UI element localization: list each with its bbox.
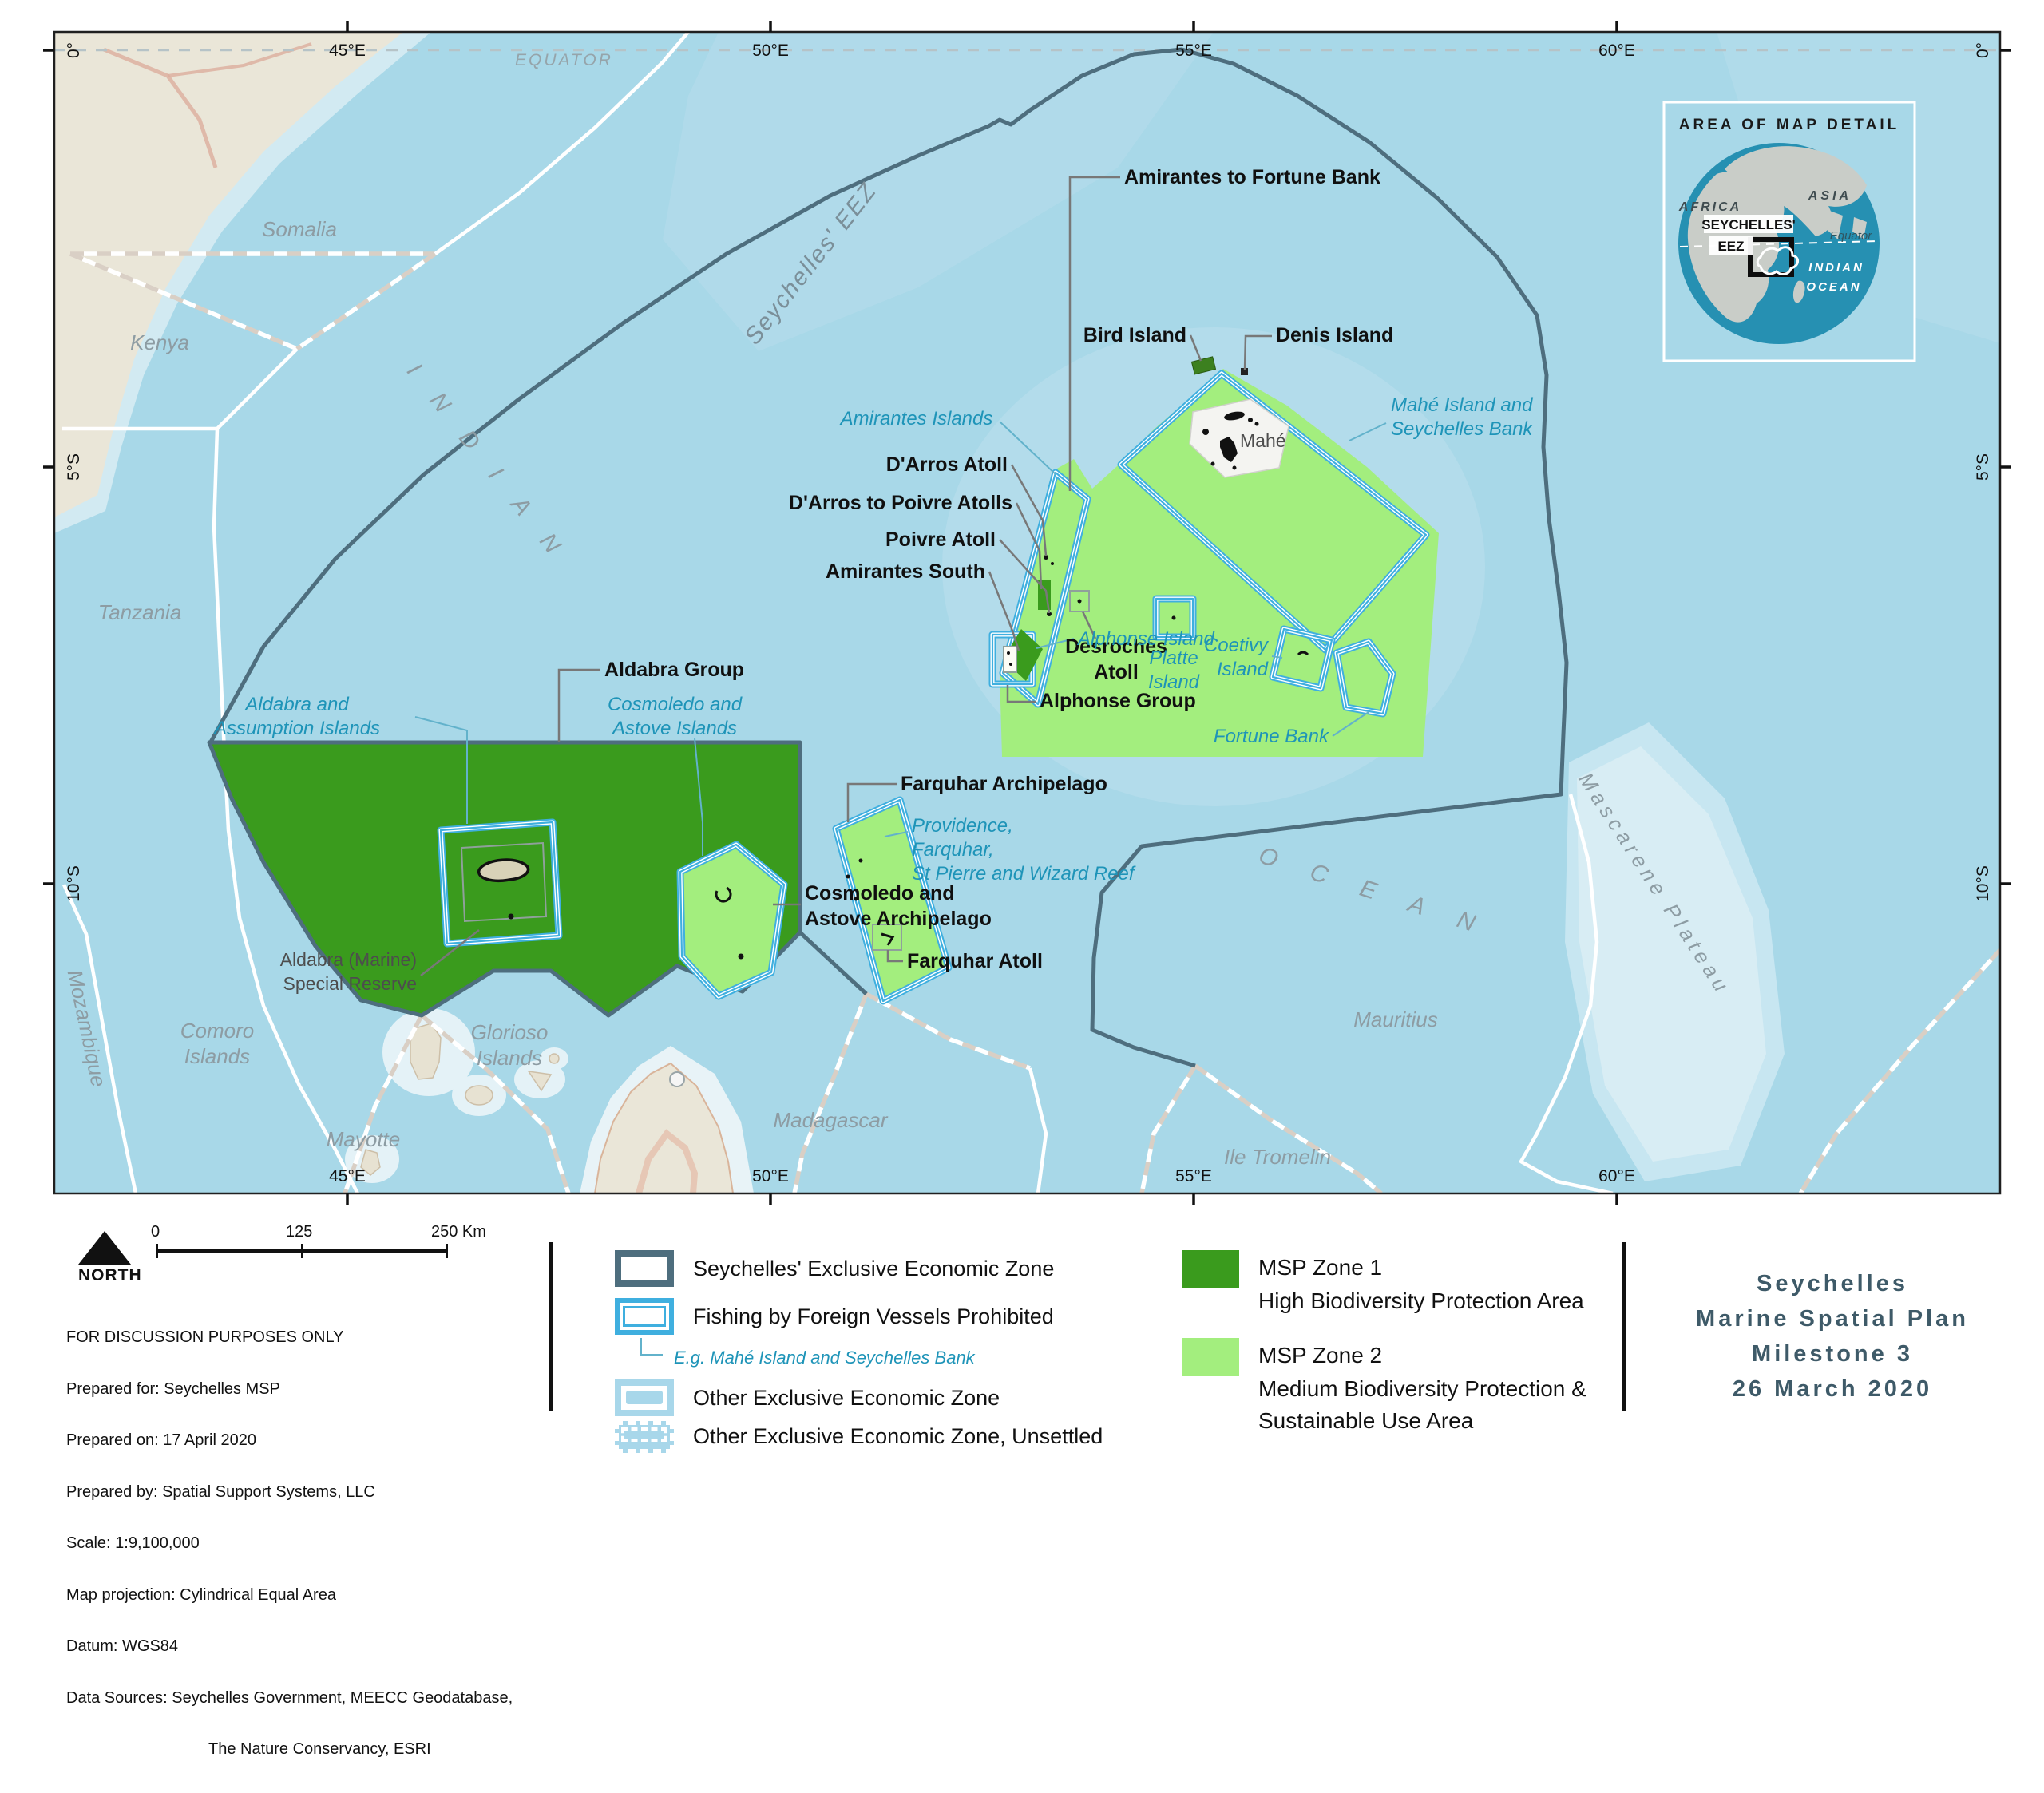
comoro-label-1: Comoro (180, 1019, 254, 1043)
lon-bottom-50: 50°E (752, 1167, 789, 1185)
lat-left-5s: 5°S (65, 453, 83, 481)
metadata-line: Prepared on: 17 April 2020 (66, 1432, 513, 1450)
legend-swatch-msp-zone2 (1182, 1338, 1239, 1376)
providence-label-2: Farquhar, (912, 839, 994, 861)
aldabra-assumption-label-2: Assumption Islands (212, 718, 380, 739)
inset-eez-label: EEZ (1717, 239, 1744, 254)
aldabra-group-label: Aldabra Group (604, 659, 744, 681)
legend-swatch-other-eez-unsettled (615, 1421, 674, 1453)
bird-island-label: Bird Island (1083, 324, 1186, 346)
metadata-line: Prepared by: Spatial Support Systems, LL… (66, 1484, 513, 1502)
lat-right-10s: 10°S (1974, 865, 1992, 902)
metadata-line: The Nature Conservancy, ESRI (66, 1741, 513, 1759)
legend-desc-msp-zone1: High Biodiversity Protection Area (1258, 1288, 1584, 1314)
metadata-line: Map projection: Cylindrical Equal Area (66, 1587, 513, 1605)
legend-label-other-eez: Other Exclusive Economic Zone (693, 1386, 1000, 1411)
cosmoledo-islands-label-1: Cosmoledo and (608, 694, 743, 715)
inset-indian-label: INDIAN (1808, 261, 1864, 275)
coetivy-island-label-2: Island (1217, 659, 1269, 680)
lon-bottom-55: 55°E (1175, 1167, 1212, 1185)
fortune-bank-label: Fortune Bank (1214, 726, 1330, 747)
legend-swatch-other-eez (615, 1379, 674, 1416)
equator-label: EQUATOR (515, 51, 613, 69)
footer-divider-1 (549, 1242, 553, 1411)
farquhar-archipelago-label: Farquhar Archipelago (901, 773, 1107, 795)
scale-bar-tick-250 (446, 1244, 448, 1258)
providence-label-3: St Pierre and Wizard Reef (912, 863, 1136, 885)
map-metadata-block: FOR DISCUSSION PURPOSES ONLY Prepared fo… (66, 1295, 513, 1793)
legend-label-msp-zone1: MSP Zone 1 (1258, 1255, 1382, 1280)
scale-label-250: 250 Km (431, 1223, 486, 1241)
glorioso-label-1: Glorioso (471, 1020, 549, 1044)
lat-left-10s: 10°S (65, 865, 83, 902)
title-line-4: 26 March 2020 (1642, 1371, 2023, 1407)
legend-desc-msp-zone2-line2: Sustainable Use Area (1258, 1408, 1473, 1434)
scale-bar-tick-125 (301, 1244, 303, 1258)
inset-area-of-map-detail: AREA OF MAP DETAIL SEYCHELLES' EEZ ASIA … (1664, 102, 1915, 361)
denis-island-label: Denis Island (1276, 324, 1393, 346)
ile-tromelin-label: Ile Tromelin (1224, 1145, 1331, 1169)
legend-elbow-connector (640, 1338, 663, 1356)
madagascar-label: Madagascar (773, 1108, 888, 1132)
aldabra-reserve-label-1: Aldabra (Marine) (280, 949, 417, 970)
poivre-atoll-label: Poivre Atoll (885, 528, 996, 551)
mahe-label: Mahé (1240, 430, 1286, 451)
legend-label-fishing-prohibited: Fishing by Foreign Vessels Prohibited (693, 1304, 1054, 1329)
cosmoledo-archipelago-label-1: Cosmoledo and (805, 882, 955, 904)
title-line-2: Marine Spatial Plan (1642, 1301, 2023, 1336)
metadata-line: Prepared for: Seychelles MSP (66, 1381, 513, 1399)
alphonse-island-label: Alphonse Island (1076, 628, 1214, 650)
lon-top-50: 50°E (752, 42, 789, 60)
inset-seychelles-label: SEYCHELLES' (1701, 217, 1795, 232)
lon-top-55: 55°E (1175, 42, 1212, 60)
legend-swatch-seychelles-eez (615, 1250, 674, 1287)
somalia-label: Somalia (262, 217, 337, 241)
tanzania-label: Tanzania (98, 600, 182, 624)
map-title-block: Seychelles Marine Spatial Plan Milestone… (1642, 1266, 2023, 1407)
amirantes-islands-label: Amirantes Islands (839, 408, 993, 429)
kenya-label: Kenya (130, 330, 189, 354)
amirantes-south-label: Amirantes South (826, 560, 985, 583)
legend-sublabel-fishing-example: E.g. Mahé Island and Seychelles Bank (674, 1348, 975, 1368)
scale-bar-tick-0 (156, 1244, 158, 1258)
inset-asia-label: ASIA (1808, 189, 1852, 203)
aldabra-assumption-label-1: Aldabra and (244, 694, 349, 715)
north-arrow-icon (78, 1231, 131, 1265)
inset-title: AREA OF MAP DETAIL (1679, 117, 1899, 133)
darros-to-poivre-label: D'Arros to Poivre Atolls (789, 492, 1012, 514)
providence-label-1: Providence, (912, 815, 1013, 837)
mahe-bank-label-2: Seychelles Bank (1391, 418, 1534, 440)
mahe-bank-label-1: Mahé Island and (1391, 394, 1533, 416)
legend-swatch-msp-zone1 (1182, 1250, 1239, 1288)
desroches-atoll-label-2: Atoll (1094, 661, 1139, 683)
footer-divider-2 (1622, 1242, 1626, 1411)
metadata-line: FOR DISCUSSION PURPOSES ONLY (66, 1329, 513, 1347)
legend-desc-msp-zone2-line1: Medium Biodiversity Protection & (1258, 1376, 1586, 1402)
lat-right-0: 0° (1974, 42, 1992, 58)
scale-label-0: 0 (151, 1223, 160, 1241)
legend-label-other-eez-unsettled: Other Exclusive Economic Zone, Unsettled (693, 1424, 1103, 1449)
aldabra-reserve-label-2: Special Reserve (283, 973, 417, 994)
cosmoledo-archipelago-label-2: Astove Archipelago (805, 908, 992, 930)
legend-label-seychelles-eez: Seychelles' Exclusive Economic Zone (693, 1257, 1054, 1281)
platte-island-label-2: Island (1148, 671, 1200, 693)
glorioso-label-2: Islands (477, 1046, 542, 1070)
lon-bottom-60: 60°E (1598, 1167, 1635, 1185)
farquhar-atoll-label: Farquhar Atoll (907, 950, 1043, 972)
platte-island-label-1: Platte (1149, 647, 1198, 669)
amirantes-to-fortune-bank-label: Amirantes to Fortune Bank (1124, 166, 1380, 188)
legend-swatch-fishing-prohibited (615, 1298, 674, 1335)
lat-right-5s: 5°S (1974, 453, 1992, 481)
lon-top-45: 45°E (329, 42, 366, 60)
inset-ocean-label: OCEAN (1806, 280, 1861, 294)
metadata-line: Datum: WGS84 (66, 1638, 513, 1656)
scale-label-125: 125 (286, 1223, 312, 1241)
legend-label-msp-zone2: MSP Zone 2 (1258, 1343, 1382, 1368)
lon-top-60: 60°E (1598, 42, 1635, 60)
cosmoledo-islands-label-2: Astove Islands (611, 718, 737, 739)
lon-bottom-45: 45°E (329, 1167, 366, 1185)
title-line-3: Milestone 3 (1642, 1336, 2023, 1371)
mauritius-label: Mauritius (1353, 1007, 1437, 1031)
comoro-label-2: Islands (184, 1044, 250, 1068)
coetivy-island-label-1: Coetivy (1204, 635, 1270, 656)
metadata-line: Data Sources: Seychelles Government, MEE… (66, 1690, 513, 1708)
metadata-line: Scale: 1:9,100,000 (66, 1535, 513, 1553)
map-sheet: EQUATOR Seychelles' EEZ Somalia Kenya Ta… (0, 0, 2044, 1445)
inset-africa-label: AFRICA (1678, 200, 1741, 214)
alphonse-group-label: Alphonse Group (1040, 690, 1196, 712)
mayotte-label: Mayotte (327, 1127, 401, 1151)
lat-left-0: 0° (65, 42, 83, 58)
north-label: NORTH (78, 1266, 131, 1285)
darros-atoll-label: D'Arros Atoll (886, 453, 1008, 476)
title-line-1: Seychelles (1642, 1266, 2023, 1301)
inset-equator-label: Equator (1830, 229, 1873, 243)
